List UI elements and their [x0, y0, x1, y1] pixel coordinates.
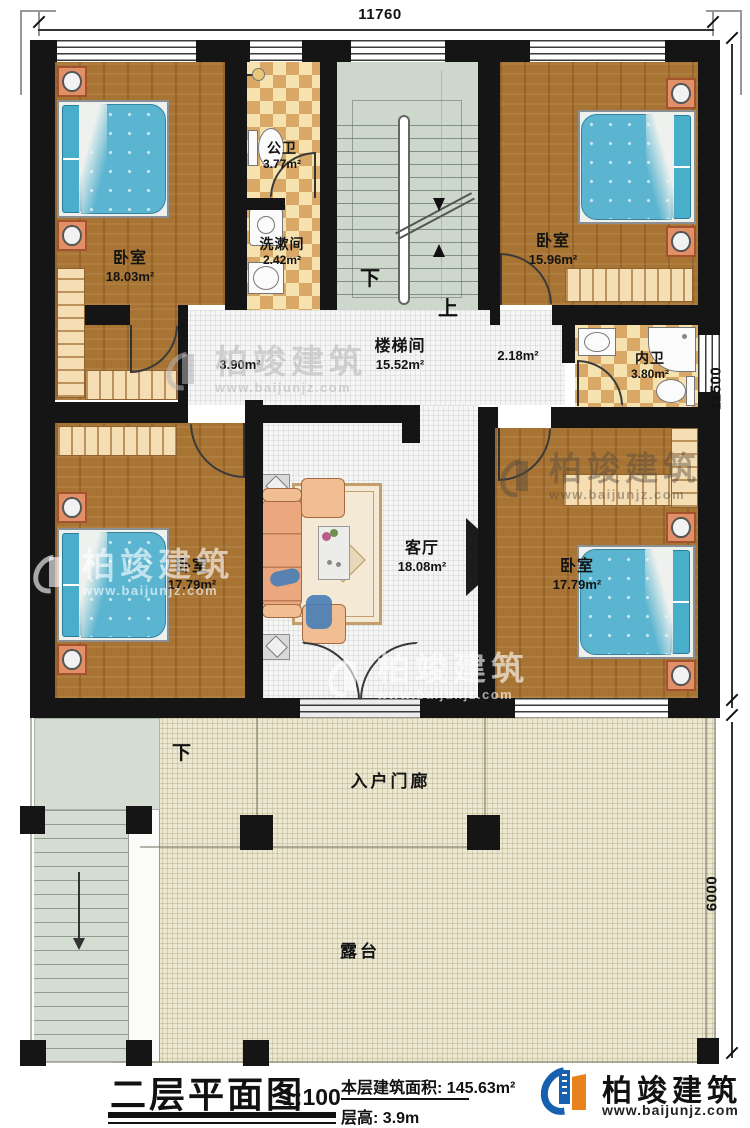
column [126, 1040, 152, 1066]
door-threshold [300, 698, 420, 718]
wall-interior [402, 405, 420, 443]
window [530, 40, 665, 62]
room-label-stairwell: 楼梯间15.52m² [340, 338, 460, 372]
title-block-divider [341, 1098, 469, 1100]
closet [565, 268, 693, 302]
room-label-bedroom-tr: 卧室15.96m² [493, 233, 613, 267]
stair-up-label: 上 [438, 292, 458, 321]
room-label-bedroom-bl: 卧室17.79m² [132, 558, 252, 592]
wall-exterior-left [30, 40, 55, 718]
dim-line [38, 29, 714, 31]
washing-machine-door [257, 216, 275, 234]
porch-line [140, 846, 490, 848]
wall-interior [85, 305, 130, 325]
corner-mark [740, 10, 742, 95]
bed [57, 100, 169, 218]
room-label-terrace: 露台 [322, 942, 398, 962]
stair-arrow-up-icon [433, 244, 445, 257]
brand-logo-icon [542, 1062, 594, 1120]
sink-basin [253, 266, 279, 290]
armchair [301, 478, 345, 518]
room-label-hall-left: 3.90m² [198, 357, 282, 372]
shower-drain-icon [682, 334, 687, 339]
room-label-living: 客厅18.08m² [360, 540, 484, 574]
floor-area-row: 本层建筑面积: 145.63m² [341, 1074, 515, 1098]
column [697, 1038, 719, 1064]
room-label-bedroom-br: 卧室17.79m² [515, 558, 639, 592]
dim-terrace: 6000 [704, 854, 721, 934]
sofa [262, 500, 302, 606]
table-item [327, 560, 332, 565]
room-label-ensuite: 内卫3.80m² [608, 350, 692, 381]
dim-right: 11500 [708, 349, 725, 429]
wall-interior [225, 62, 247, 310]
nightstand [57, 644, 87, 675]
wall-interior [552, 305, 698, 325]
closet [563, 474, 677, 506]
wall-interior [551, 407, 698, 428]
window [250, 40, 302, 62]
closet [57, 426, 177, 456]
wall-interior [247, 198, 285, 210]
nightstand [57, 492, 87, 523]
room-label-porch: 入户门廊 [318, 772, 463, 792]
window [351, 40, 445, 62]
dim-top: 11760 [335, 6, 425, 23]
room-label-public-bath: 公卫3.77m² [246, 140, 318, 171]
closet [57, 268, 85, 398]
nightstand [57, 66, 87, 97]
floor-plan-drawing: 卧室18.03m² 公卫3.77m² 洗漱间2.42m² 卧室15.96m² 楼… [0, 0, 750, 1128]
ext-stair-arrow-line [78, 872, 80, 942]
wall-interior [490, 305, 500, 325]
nightstand [666, 226, 696, 257]
window [515, 698, 668, 718]
title-underline [108, 1112, 336, 1118]
terrace-edge [30, 718, 32, 1063]
floor-terrace [112, 718, 716, 1063]
wall-interior [562, 325, 575, 363]
sink-basin [584, 332, 610, 352]
flower-decor [330, 529, 338, 537]
column [126, 806, 152, 834]
floor-ext-stair-landing [34, 718, 160, 810]
closet [85, 370, 177, 400]
wall-interior [30, 402, 188, 423]
ext-stair-arrow-icon [73, 938, 85, 950]
room-label-bedroom-tl: 卧室18.03m² [70, 250, 190, 284]
stair-down-label: 下 [360, 262, 380, 291]
floor-height-row: 层高: 3.9m [341, 1104, 419, 1128]
closet [671, 428, 698, 508]
title-underline-thin [108, 1122, 336, 1124]
corner-mark [706, 10, 742, 12]
nightstand [57, 220, 87, 251]
column [20, 1040, 46, 1066]
wall-interior [263, 405, 402, 423]
plan-scale: 1:100 [282, 1084, 341, 1111]
brand-site: www.baijunjz.com [602, 1102, 739, 1118]
toilet-bowl [656, 379, 686, 403]
room-label-washroom: 洗漱间2.42m² [238, 236, 326, 267]
ceiling-lamp-icon [252, 68, 265, 81]
bed [578, 110, 696, 224]
terrace-down-label: 下 [172, 738, 191, 765]
stair-arrow-down-icon [433, 198, 445, 211]
sofa-armrest [262, 604, 302, 618]
person-figure [306, 595, 332, 629]
wall-interior [478, 62, 500, 310]
wall-interior [245, 400, 263, 698]
column [467, 815, 500, 850]
wall-interior [178, 305, 188, 403]
dim-tick [726, 32, 739, 45]
floor-ext-stair [34, 810, 128, 1062]
stair-center-rail [398, 115, 410, 305]
nightstand [666, 660, 696, 691]
side-table [262, 634, 290, 660]
dim-tick [726, 709, 739, 722]
column [243, 1040, 269, 1066]
column [20, 806, 45, 834]
dim-line [731, 44, 733, 708]
room-label-hall-right: 2.18m² [476, 348, 560, 363]
table-item [336, 562, 341, 567]
wall-interior [320, 62, 337, 310]
window [57, 40, 196, 62]
sofa-armrest [262, 488, 302, 502]
corner-mark [20, 10, 22, 95]
column [240, 815, 273, 850]
nightstand [666, 512, 696, 543]
plan-title: 二层平面图 [110, 1066, 305, 1118]
nightstand [666, 78, 696, 109]
corner-mark [20, 10, 56, 12]
wall-interior [478, 407, 498, 428]
dim-line [731, 722, 733, 1058]
